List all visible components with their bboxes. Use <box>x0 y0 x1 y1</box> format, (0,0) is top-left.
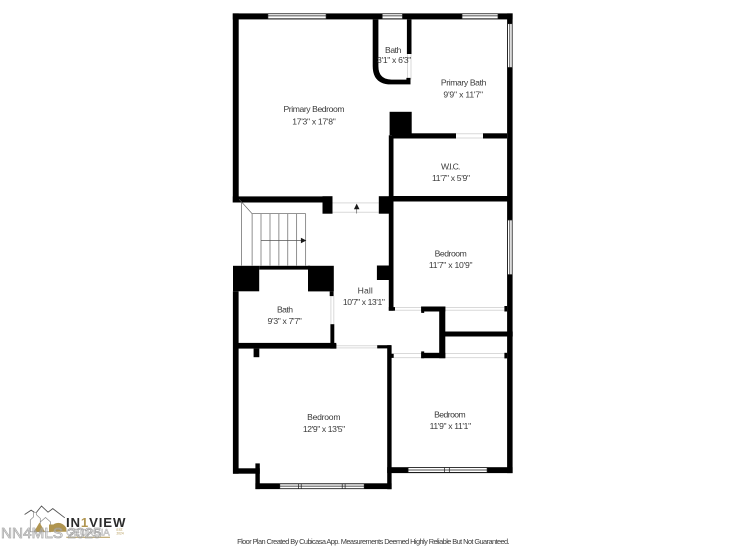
svg-text:9'9" x 11'7": 9'9" x 11'7" <box>443 90 483 100</box>
svg-text:3'1" x 6'3": 3'1" x 6'3" <box>377 55 411 65</box>
svg-text:Bath: Bath <box>385 45 402 55</box>
svg-text:11'9" x 11'1": 11'9" x 11'1" <box>430 421 472 431</box>
svg-text:Bedroom: Bedroom <box>307 412 340 422</box>
svg-text:2024: 2024 <box>117 532 124 536</box>
svg-text:Bedroom: Bedroom <box>435 248 467 258</box>
svg-text:NN4MLS 2025: NN4MLS 2025 <box>1 525 102 542</box>
svg-text:Primary Bath: Primary Bath <box>441 78 487 88</box>
svg-text:10'7" x 13'1": 10'7" x 13'1" <box>343 297 385 307</box>
svg-text:Bath: Bath <box>277 305 293 315</box>
svg-text:11'7" x 10'9": 11'7" x 10'9" <box>429 260 473 270</box>
svg-text:Primary Bedroom: Primary Bedroom <box>284 104 345 114</box>
svg-text:12'9" x 13'5": 12'9" x 13'5" <box>303 424 345 434</box>
svg-text:Hall: Hall <box>358 286 373 296</box>
svg-text:17'3" x 17'8": 17'3" x 17'8" <box>292 117 336 127</box>
svg-text:11'7" x 5'9": 11'7" x 5'9" <box>432 173 470 183</box>
svg-text:9'3" x 7'7": 9'3" x 7'7" <box>268 316 302 326</box>
svg-text:W.I.C.: W.I.C. <box>441 162 460 172</box>
svg-text:Bedroom: Bedroom <box>434 409 466 419</box>
svg-text:Floor Plan Created By Cubicasa: Floor Plan Created By Cubicasa App. Meas… <box>237 537 509 546</box>
